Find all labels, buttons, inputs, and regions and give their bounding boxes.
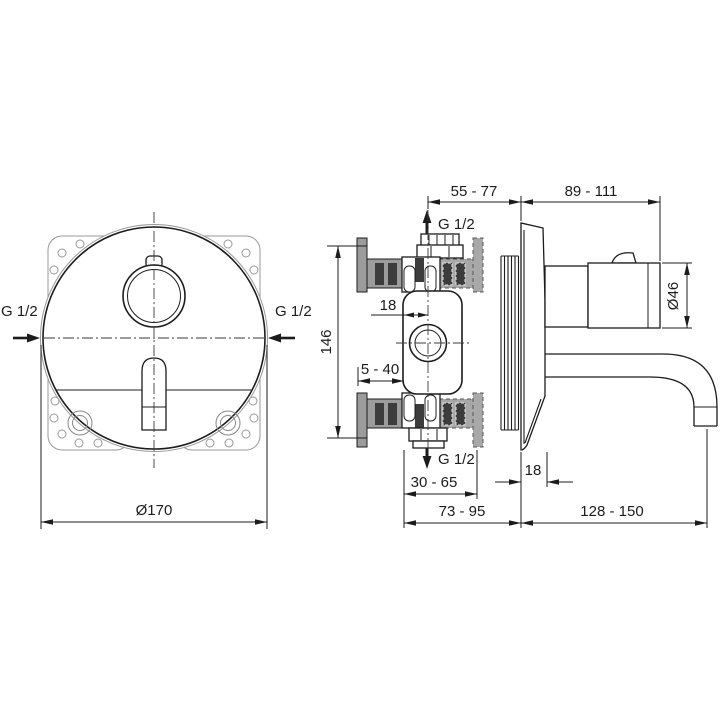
inlet-bottom-label: G 1/2 — [438, 451, 475, 468]
inlet-top-label: G 1/2 — [438, 216, 475, 233]
technical-drawing-page: G 1/2 G 1/2 Ø170 55 - 77 — [0, 0, 720, 720]
dim-spout-reach-label: 128 - 150 — [580, 503, 643, 520]
side-view: 55 - 77 89 - 111 G 1/2 — [318, 183, 717, 528]
inlet-arrow-left: G 1/2 — [1, 303, 40, 343]
top-inlet-connector — [417, 234, 463, 258]
faucet-installation-drawing: G 1/2 G 1/2 Ø170 55 - 77 — [0, 0, 720, 720]
clamp-block-bottom — [402, 393, 440, 428]
sensor-lever — [612, 253, 636, 263]
dim-plate-thickness-label: 18 — [525, 462, 542, 479]
dim-wall-to-body-end-label: 89 - 111 — [565, 183, 618, 200]
dim-mounting-depth-label: 5 - 40 — [361, 361, 399, 378]
wall-sleeve — [501, 256, 519, 430]
inlet-arrow-bottom: G 1/2 — [423, 448, 475, 469]
front-view: G 1/2 G 1/2 Ø170 — [1, 212, 312, 529]
inlet-arrow-right: G 1/2 — [268, 303, 312, 343]
inlet-left-label: G 1/2 — [1, 303, 38, 320]
dim-axis-offset-label: 18 — [380, 297, 397, 314]
dim-plate-thickness: 18 — [495, 452, 573, 487]
inlet-right-label: G 1/2 — [275, 303, 312, 320]
dim-mounting-depth: 5 - 40 — [358, 361, 404, 386]
dim-body-diameter: Ø46 — [662, 263, 692, 328]
plate-diameter-label: Ø170 — [136, 502, 173, 519]
dim-body-to-finished-wall-label: 73 - 95 — [439, 503, 486, 520]
clamp-block-top — [402, 257, 440, 292]
inlet-arrow-top: G 1/2 — [423, 210, 475, 235]
faucet-cylinder — [545, 253, 660, 328]
dim-axis-to-wall-label: 55 - 77 — [451, 183, 498, 200]
spout-profile — [545, 354, 717, 426]
plate-profile — [521, 223, 545, 450]
dim-body-to-unfinished-wall-label: 30 - 65 — [411, 474, 458, 491]
dim-body-diameter-label: Ø46 — [665, 282, 682, 310]
dim-frame-height-label: 146 — [318, 329, 335, 354]
